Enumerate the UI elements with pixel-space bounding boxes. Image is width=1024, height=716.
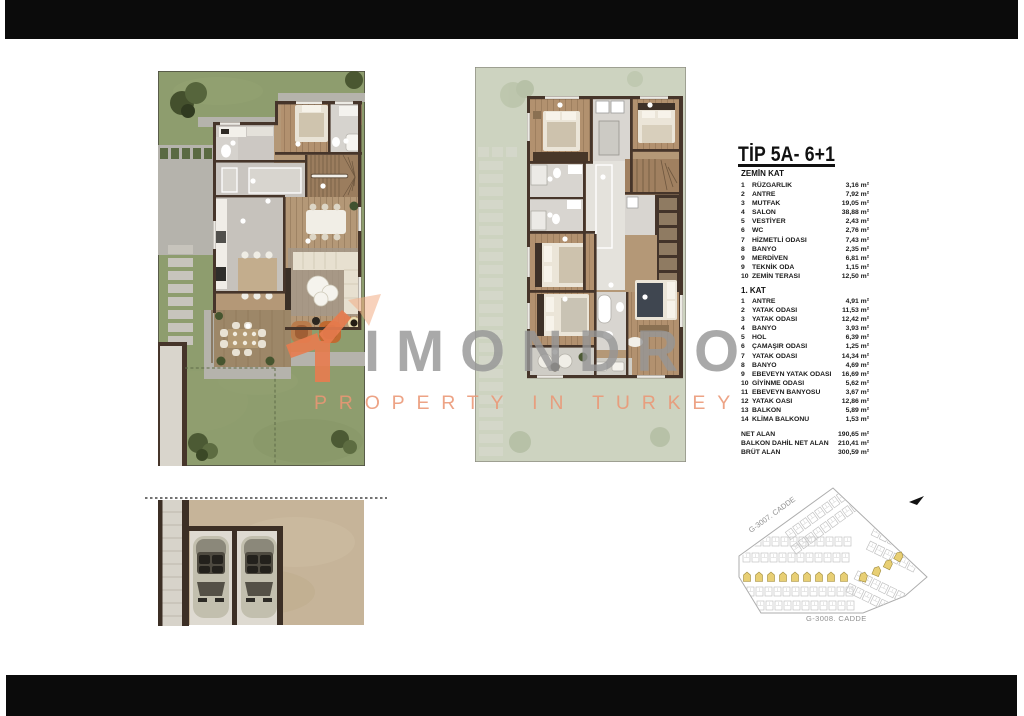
svg-text:G-3008. CADDE: G-3008. CADDE [806, 614, 867, 623]
